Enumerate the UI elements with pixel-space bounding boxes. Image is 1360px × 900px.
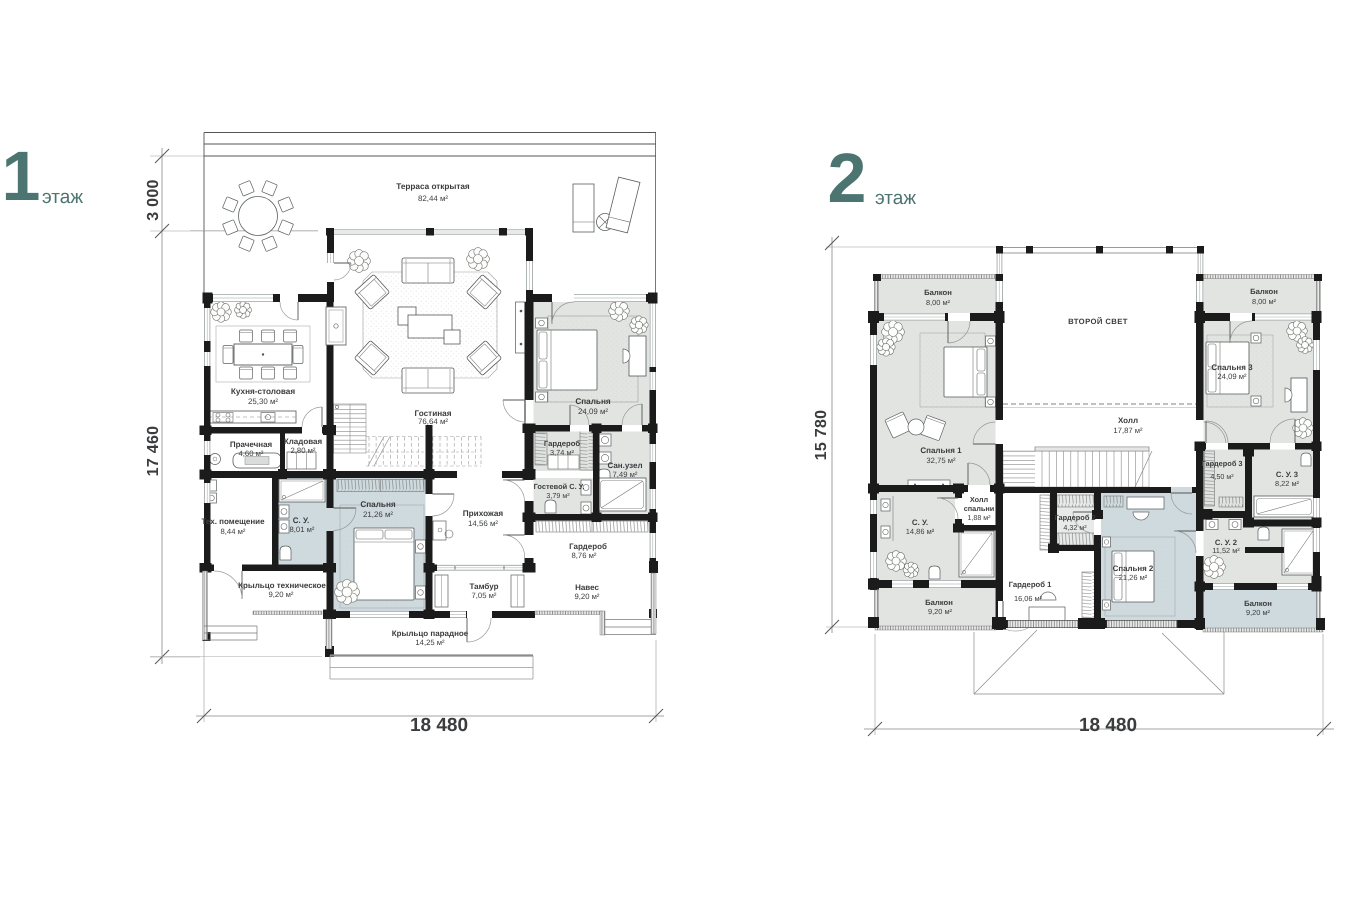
- svg-text:Спальня 3: Спальня 3: [1211, 363, 1253, 372]
- svg-text:1,88 м²: 1,88 м²: [967, 514, 991, 522]
- svg-text:4,50 м²: 4,50 м²: [1210, 472, 1234, 481]
- svg-text:9,20 м²: 9,20 м²: [1246, 608, 1271, 617]
- svg-text:Спальня 2: Спальня 2: [1113, 564, 1154, 573]
- svg-text:3 000: 3 000: [145, 179, 162, 221]
- svg-text:Кухня-столовая: Кухня-столовая: [231, 387, 295, 396]
- svg-text:С. У.: С. У.: [912, 518, 928, 527]
- svg-text:Тех. помещение: Тех. помещение: [201, 517, 265, 526]
- svg-text:этаж: этаж: [875, 188, 916, 209]
- svg-text:15 780: 15 780: [813, 410, 830, 461]
- svg-text:Навес: Навес: [575, 583, 599, 592]
- svg-text:Балкон: Балкон: [924, 288, 952, 297]
- svg-text:Крыльцо парадное: Крыльцо парадное: [392, 629, 469, 638]
- svg-text:17,87 м²: 17,87 м²: [1113, 426, 1143, 435]
- svg-text:82,44 м²: 82,44 м²: [418, 194, 448, 203]
- svg-text:11,52 м²: 11,52 м²: [1212, 546, 1240, 555]
- svg-text:14,56 м²: 14,56 м²: [468, 519, 498, 528]
- svg-text:Спальня 1: Спальня 1: [920, 446, 962, 455]
- svg-text:С. У. 3: С. У. 3: [1276, 470, 1298, 479]
- svg-text:ВТОРОЙ СВЕТ: ВТОРОЙ СВЕТ: [1068, 317, 1128, 326]
- svg-text:8,22 м²: 8,22 м²: [1275, 479, 1300, 488]
- svg-text:9,20 м²: 9,20 м²: [575, 592, 600, 601]
- svg-text:14,25 м²: 14,25 м²: [415, 638, 445, 647]
- svg-text:21,26 м²: 21,26 м²: [363, 510, 393, 519]
- svg-text:8,76 м²: 8,76 м²: [572, 551, 597, 560]
- svg-text:Холл: Холл: [970, 495, 989, 504]
- svg-text:21,26 м²: 21,26 м²: [1119, 573, 1148, 582]
- svg-text:Гардероб: Гардероб: [544, 439, 581, 448]
- svg-text:Прачечная: Прачечная: [230, 440, 273, 449]
- svg-text:9,20 м²: 9,20 м²: [928, 607, 953, 616]
- svg-text:Гардероб 2: Гардероб 2: [1054, 513, 1095, 522]
- svg-text:8,01 м²: 8,01 м²: [290, 525, 315, 534]
- svg-text:76,64 м²: 76,64 м²: [418, 417, 448, 426]
- svg-text:спальни: спальни: [964, 504, 995, 513]
- svg-text:Гардероб 3: Гардероб 3: [1201, 459, 1242, 468]
- svg-text:Спальня: Спальня: [575, 397, 611, 406]
- svg-text:2,80 м²: 2,80 м²: [291, 446, 316, 455]
- svg-text:3,79 м²: 3,79 м²: [546, 491, 570, 500]
- svg-text:17 460: 17 460: [145, 426, 162, 477]
- svg-text:24,09 м²: 24,09 м²: [578, 407, 608, 416]
- svg-text:16,06 м²: 16,06 м²: [1014, 594, 1043, 603]
- svg-text:Спальня: Спальня: [360, 500, 396, 509]
- svg-text:Терраса открытая: Терраса открытая: [396, 182, 470, 191]
- svg-text:Холл: Холл: [1118, 416, 1138, 425]
- svg-text:С. У.: С. У.: [293, 516, 309, 525]
- svg-text:Гостевой С. У.: Гостевой С. У.: [534, 482, 585, 491]
- svg-text:Балкон: Балкон: [1244, 599, 1272, 608]
- svg-text:Балкон: Балкон: [925, 598, 953, 607]
- svg-text:4,32 м²: 4,32 м²: [1063, 523, 1087, 532]
- svg-text:8,44 м²: 8,44 м²: [221, 527, 246, 536]
- svg-text:24,09 м²: 24,09 м²: [1217, 372, 1247, 381]
- svg-text:Кладовая: Кладовая: [284, 437, 323, 446]
- svg-text:Гардероб: Гардероб: [569, 542, 607, 551]
- svg-text:32,75 м²: 32,75 м²: [926, 456, 956, 465]
- svg-text:7,49 м²: 7,49 м²: [613, 470, 638, 479]
- svg-text:8,00 м²: 8,00 м²: [926, 298, 951, 307]
- svg-text:4,60 м²: 4,60 м²: [239, 449, 264, 458]
- svg-text:Прихожая: Прихожая: [463, 509, 504, 518]
- svg-text:18 480: 18 480: [1079, 715, 1137, 736]
- svg-text:2: 2: [828, 139, 867, 217]
- svg-text:Крыльцо техническое: Крыльцо техническое: [238, 581, 326, 590]
- svg-text:Гардероб 1: Гардероб 1: [1009, 580, 1052, 589]
- svg-text:7,05 м²: 7,05 м²: [472, 591, 497, 600]
- svg-text:8,00 м²: 8,00 м²: [1252, 297, 1277, 306]
- svg-text:1: 1: [2, 137, 41, 215]
- svg-text:этаж: этаж: [42, 187, 83, 208]
- svg-text:3,74 м²: 3,74 м²: [550, 448, 575, 457]
- svg-text:Тамбур: Тамбур: [469, 582, 498, 591]
- svg-text:25,30 м²: 25,30 м²: [248, 397, 278, 406]
- svg-text:18 480: 18 480: [410, 715, 468, 736]
- svg-text:Балкон: Балкон: [1250, 287, 1278, 296]
- svg-text:Сан.узел: Сан.узел: [607, 461, 642, 470]
- svg-text:14,86 м²: 14,86 м²: [906, 527, 935, 536]
- svg-text:9,20 м²: 9,20 м²: [269, 590, 294, 599]
